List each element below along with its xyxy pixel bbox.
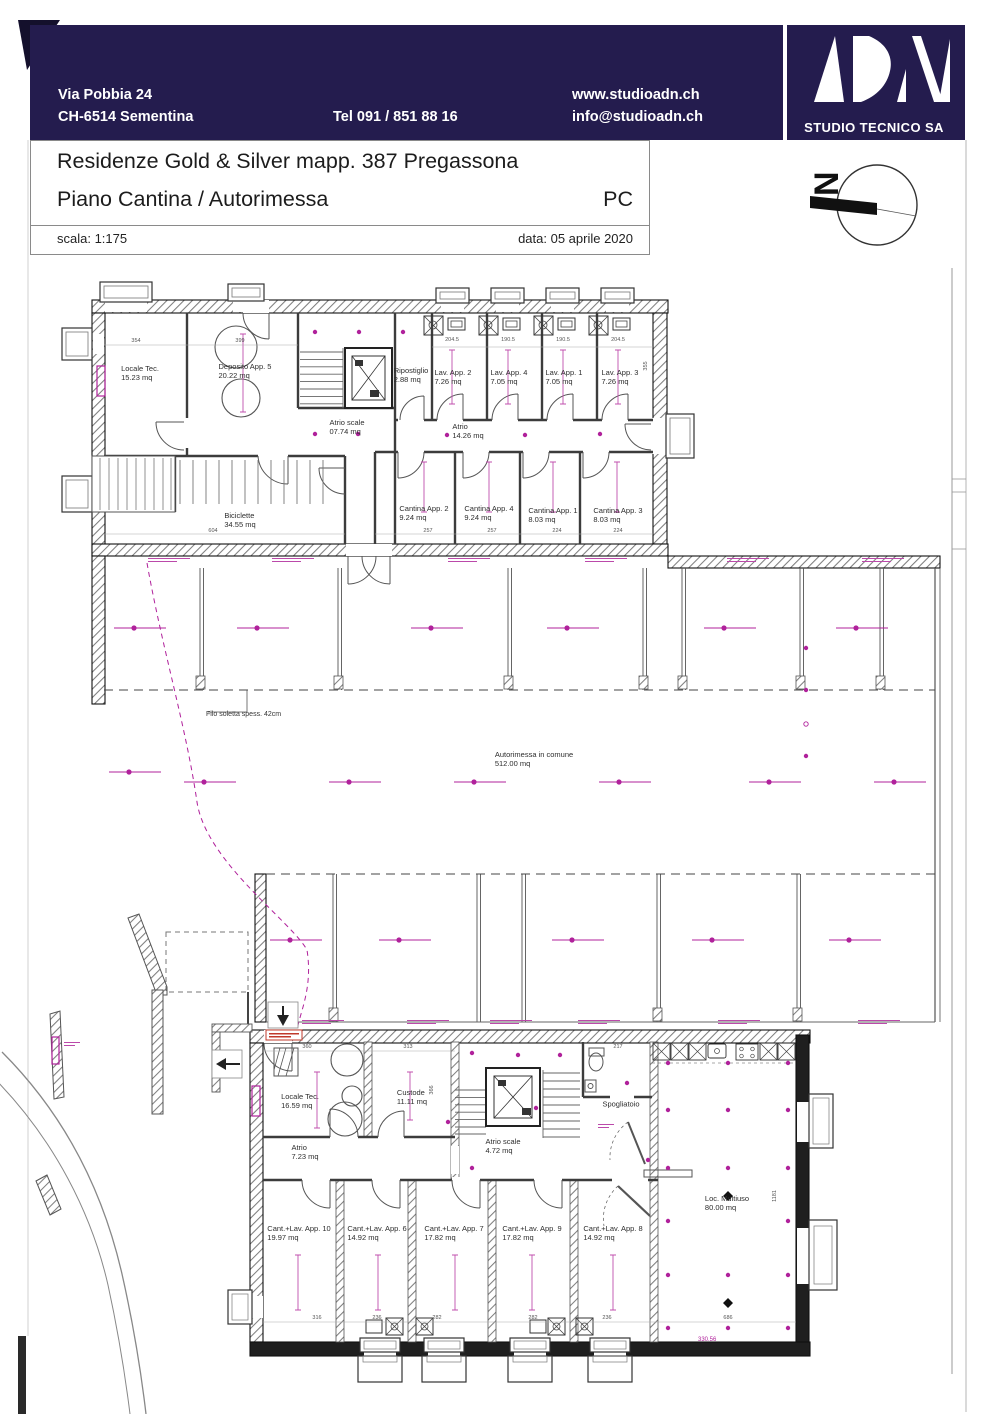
slab-note: Filo soletta spess. 42cm xyxy=(206,711,281,718)
email-link[interactable]: info@studioadn.ch xyxy=(572,109,703,125)
company-name: STUDIO TECNICO SA xyxy=(787,120,961,135)
room-label: Cant.+Lav. App. 1019.97 mq xyxy=(267,1225,330,1243)
parking-equipment-note xyxy=(302,1020,344,1026)
property-boundary xyxy=(952,268,966,1374)
room-label: Ripostiglio2.88 mq xyxy=(394,367,429,385)
wc-fixtures xyxy=(585,1048,692,1177)
company-logo: STUDIO TECNICO SA xyxy=(787,25,965,140)
dimension-label: 224 xyxy=(552,528,561,534)
title-meta-row: scala: 1:175 data: 05 aprile 2020 xyxy=(31,225,649,254)
address-line1: Via Pobbia 24 xyxy=(58,87,152,103)
room-label: Locale Tec.15.23 mq xyxy=(121,365,159,383)
washer-icons-upper xyxy=(424,316,630,335)
room-label: Atrio7.23 mq xyxy=(291,1144,318,1162)
washer-icons-lower xyxy=(366,1318,593,1335)
website-link[interactable]: www.studioadn.ch xyxy=(572,87,700,103)
parking-equipment-note xyxy=(64,1042,80,1048)
header-band: Via Pobbia 24 CH-6514 Sementina Tel 091 … xyxy=(30,25,783,140)
room-label: Lav. App. 27.26 mq xyxy=(435,369,472,387)
counter-strip xyxy=(652,1043,796,1063)
parking-equipment-note xyxy=(727,558,769,564)
dimension-label: 257 xyxy=(487,528,496,534)
room-label: Spogliatoio xyxy=(602,1101,639,1110)
lower-partitions xyxy=(263,1042,658,1342)
plan-code: PC xyxy=(603,187,633,212)
dimension-label: 399 xyxy=(235,338,244,344)
dimension-label: 204.5 xyxy=(445,337,459,343)
address-line2: CH-6514 Sementina xyxy=(58,109,193,125)
tanks-lower xyxy=(274,1044,363,1136)
parking-dividers xyxy=(200,568,940,1022)
title-block: Residenze Gold & Silver mapp. 387 Pregas… xyxy=(30,140,650,255)
dimension-label: 282 xyxy=(432,1315,441,1321)
dimension-label: 360 xyxy=(302,1044,311,1050)
route-curve xyxy=(147,563,309,1030)
phone: Tel 091 / 851 88 16 xyxy=(333,109,458,125)
room-label: Atrio scale4.72 mq xyxy=(485,1138,520,1156)
dimension-label: 257 xyxy=(423,528,432,534)
dimension-label: 236 xyxy=(602,1315,611,1321)
parking-equipment-note xyxy=(448,558,490,564)
dimension-label: 366 xyxy=(429,1085,435,1094)
parking-equipment-note xyxy=(407,1020,449,1026)
upper-wall-openings xyxy=(93,300,671,556)
upper-building-walls xyxy=(92,300,668,556)
scale-value: scala: 1:175 xyxy=(57,231,127,246)
room-label: Cantina App. 18.03 mq xyxy=(528,507,577,525)
room-label: Autorimessa in comune512.00 mq xyxy=(495,751,573,769)
room-label: Cantina App. 29.24 mq xyxy=(399,505,448,523)
lower-staircase xyxy=(455,1068,580,1138)
room-label: Biciclette34.55 mq xyxy=(224,512,255,530)
dimension-label: 355 xyxy=(643,361,649,370)
dimension-label: 282 xyxy=(528,1315,537,1321)
dimension-label: 224 xyxy=(613,528,622,534)
dimension-label: 313 xyxy=(403,1044,412,1050)
dimension-label: 604 xyxy=(208,528,217,534)
parking-equipment-note xyxy=(490,1020,532,1026)
project-title: Residenze Gold & Silver mapp. 387 Pregas… xyxy=(57,149,518,174)
parking-equipment-note xyxy=(578,1020,620,1026)
dimension-label: 190.5 xyxy=(501,337,515,343)
upper-staircase xyxy=(300,348,392,408)
parking-equipment-note xyxy=(148,558,190,564)
garage-columns xyxy=(196,676,885,1021)
parking-equipment-note xyxy=(718,1020,760,1026)
north-label: N xyxy=(808,171,846,196)
dimension-label: 354 xyxy=(131,338,140,344)
parking-equipment-note xyxy=(862,558,904,564)
north-arrow: N xyxy=(808,165,917,245)
parking-equipment-note xyxy=(272,558,314,564)
room-label: Cant.+Lav. App. 614.92 mq xyxy=(347,1225,406,1243)
room-label: Cantina App. 49.24 mq xyxy=(464,505,513,523)
filo-leader xyxy=(208,690,247,712)
room-label: Atrio14.26 mq xyxy=(452,423,483,441)
dimension-label: 1181 xyxy=(772,1190,778,1202)
room-label: Cant.+Lav. App. 814.92 mq xyxy=(583,1225,642,1243)
dimension-label: 236 xyxy=(372,1315,381,1321)
upper-doors xyxy=(156,313,651,584)
plan-title: Piano Cantina / Autorimessa xyxy=(57,187,328,212)
room-label: Custode11.11 mq xyxy=(397,1089,427,1107)
dimension-label: 204.5 xyxy=(611,337,625,343)
room-label: Atrio scale07.74 mq xyxy=(329,419,364,437)
room-label: Lav. App. 17.05 mq xyxy=(546,369,583,387)
dimension-label: 316 xyxy=(312,1315,321,1321)
lower-door-gaps xyxy=(302,1094,648,1183)
room-label: Lav. App. 37.26 mq xyxy=(602,369,639,387)
dimension-label: 190.5 xyxy=(556,337,570,343)
date-value: data: 05 aprile 2020 xyxy=(518,231,633,246)
parking-equipment-note xyxy=(598,1124,614,1130)
room-label: Lav. App. 47.05 mq xyxy=(491,369,528,387)
room-label: Cant.+Lav. App. 717.82 mq xyxy=(424,1225,483,1243)
terrain xyxy=(0,914,248,1414)
dimension-label: 686 xyxy=(723,1315,732,1321)
parking-equipment-note xyxy=(858,1020,900,1026)
dimension-label: 217 xyxy=(613,1044,622,1050)
elevation-note: 330.56 xyxy=(698,1337,716,1343)
room-label: Cantina App. 38.03 mq xyxy=(593,507,642,525)
stall-front-lines xyxy=(104,690,935,1022)
room-label: Loc. Multiuso80.00 mq xyxy=(705,1195,749,1213)
room-label: Deposito App. 520.22 mq xyxy=(219,363,272,381)
garage-walls xyxy=(92,556,940,1022)
room-label: Cant.+Lav. App. 917.82 mq xyxy=(502,1225,561,1243)
parking-equipment-note xyxy=(585,558,627,564)
room-label: Locale Tec.16.59 mq xyxy=(281,1093,319,1111)
